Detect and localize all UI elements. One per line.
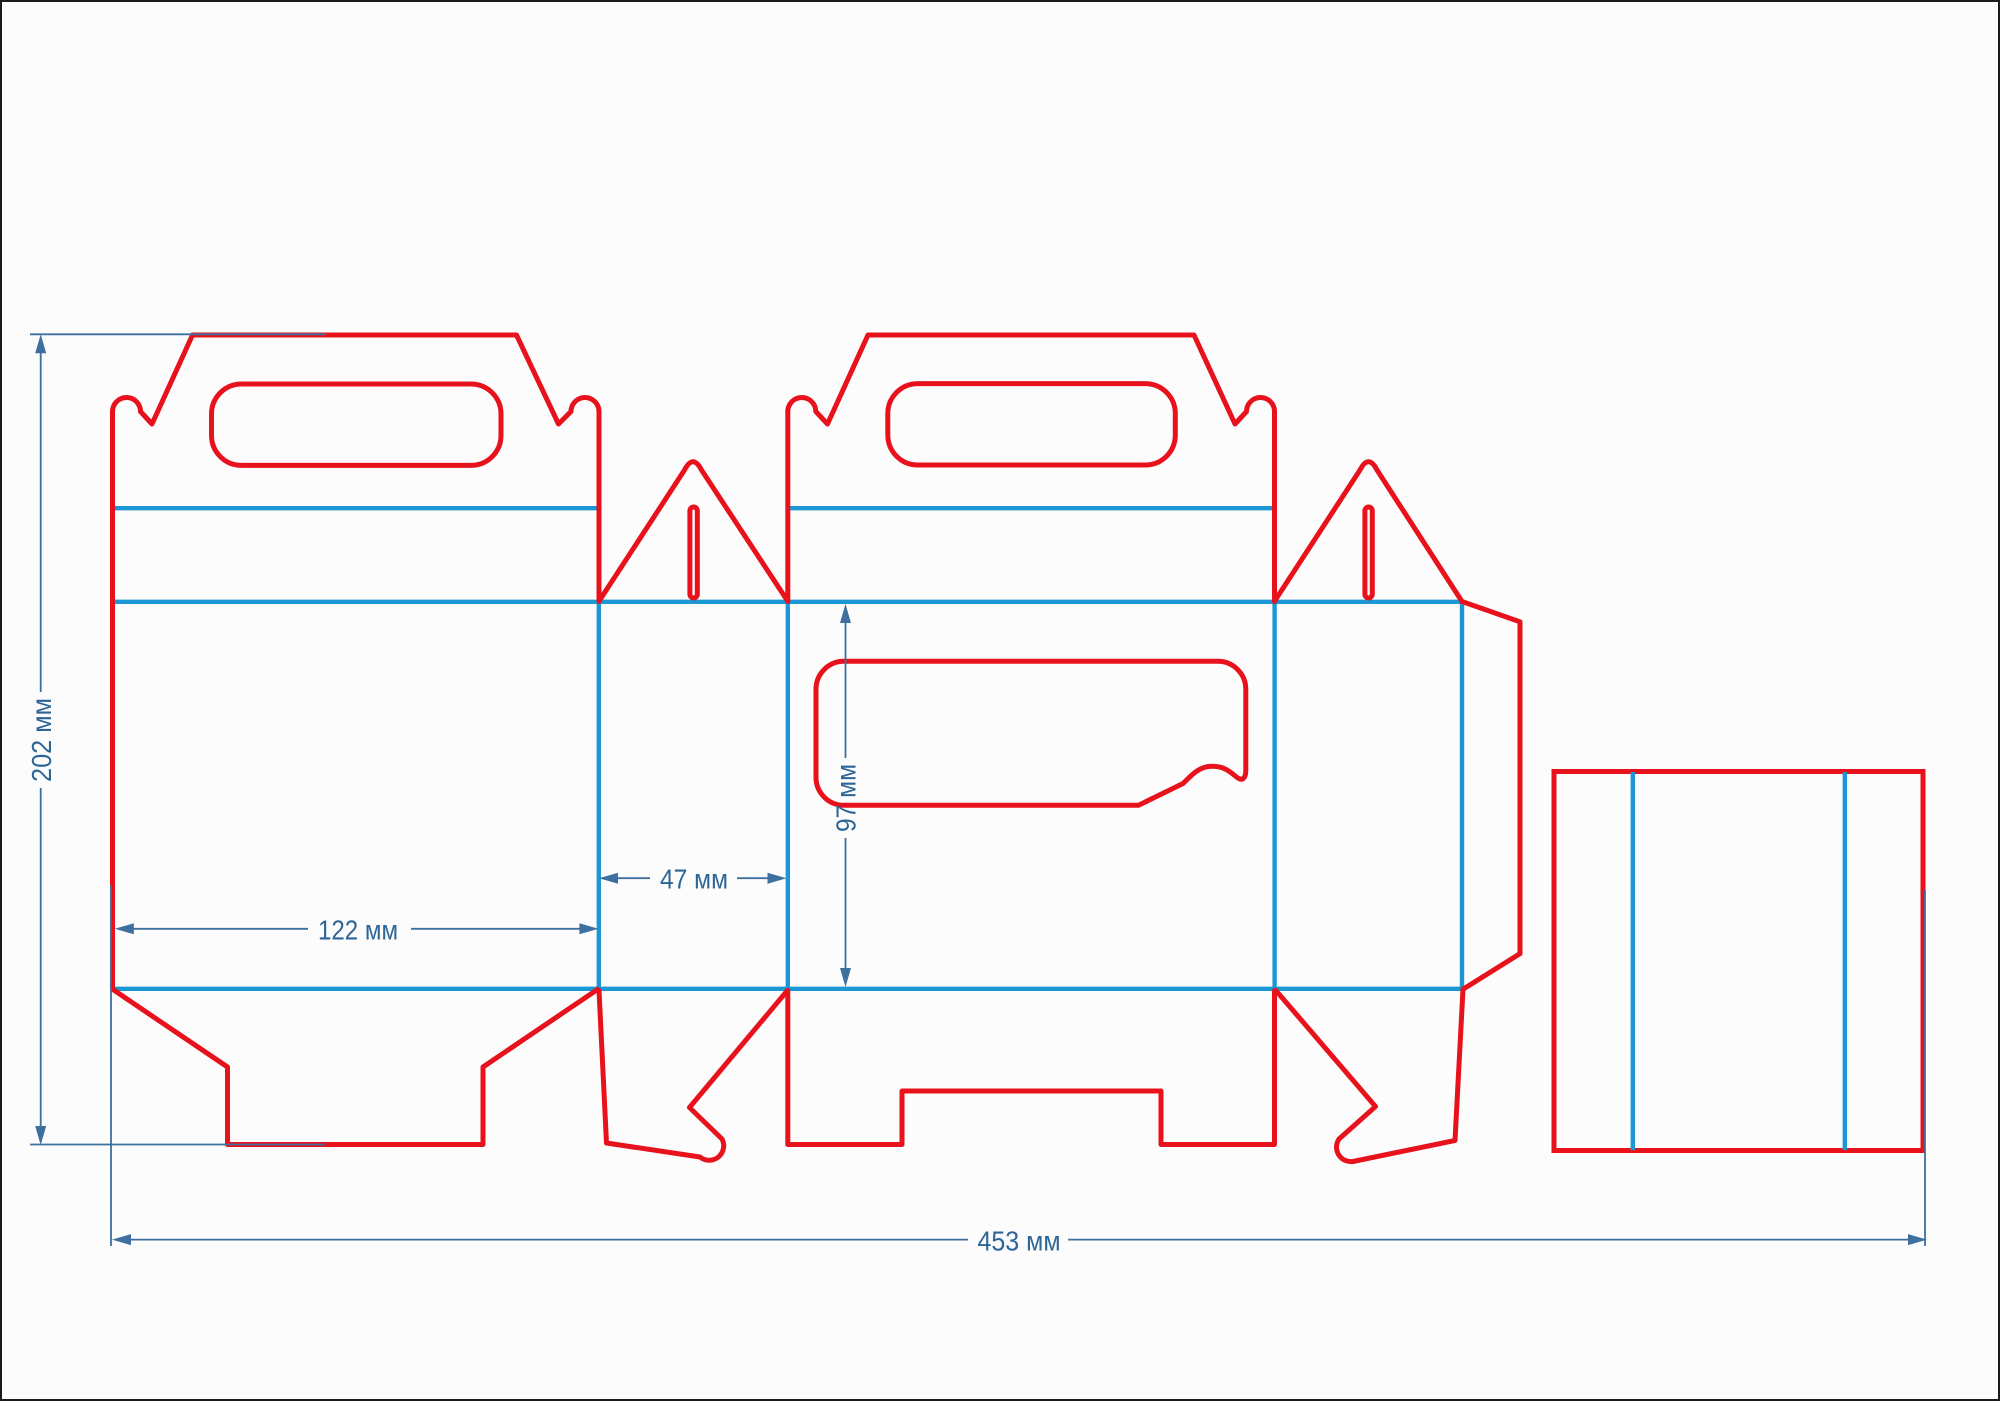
- svg-text:47 мм: 47 мм: [660, 864, 728, 895]
- svg-text:122 мм: 122 мм: [318, 915, 398, 946]
- svg-text:97 мм: 97 мм: [831, 764, 862, 832]
- svg-text:453 мм: 453 мм: [978, 1225, 1061, 1256]
- svg-text:202 мм: 202 мм: [26, 698, 57, 782]
